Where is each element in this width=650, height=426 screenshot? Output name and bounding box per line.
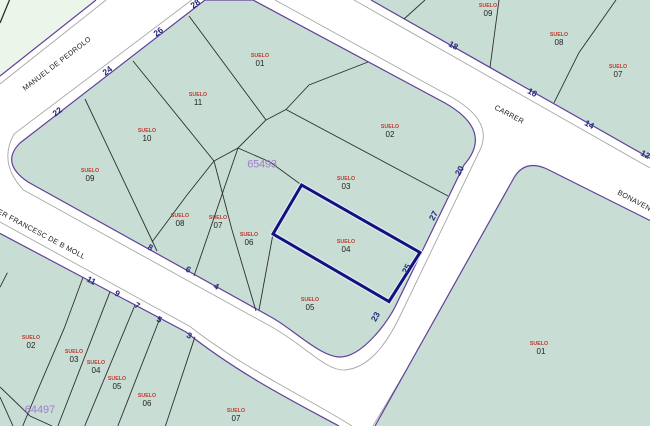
svg-text:08: 08 — [176, 219, 185, 228]
svg-text:06: 06 — [143, 399, 152, 408]
svg-text:01: 01 — [256, 59, 265, 68]
svg-text:01: 01 — [537, 347, 546, 356]
svg-text:09: 09 — [484, 9, 493, 18]
svg-text:08: 08 — [555, 38, 564, 47]
svg-text:05: 05 — [113, 382, 122, 391]
svg-text:07: 07 — [232, 414, 241, 423]
svg-text:05: 05 — [306, 303, 315, 312]
svg-text:04: 04 — [342, 245, 351, 254]
svg-text:06: 06 — [245, 238, 254, 247]
svg-text:03: 03 — [70, 355, 79, 364]
svg-text:11: 11 — [194, 98, 203, 107]
svg-text:65493: 65493 — [247, 159, 277, 171]
svg-text:10: 10 — [143, 134, 152, 143]
svg-text:09: 09 — [86, 174, 95, 183]
svg-text:03: 03 — [342, 182, 351, 191]
svg-text:64497: 64497 — [25, 404, 56, 416]
svg-text:02: 02 — [386, 130, 395, 139]
svg-text:04: 04 — [92, 366, 101, 375]
svg-text:07: 07 — [214, 221, 223, 230]
svg-text:02: 02 — [27, 341, 36, 350]
svg-text:07: 07 — [614, 70, 623, 79]
